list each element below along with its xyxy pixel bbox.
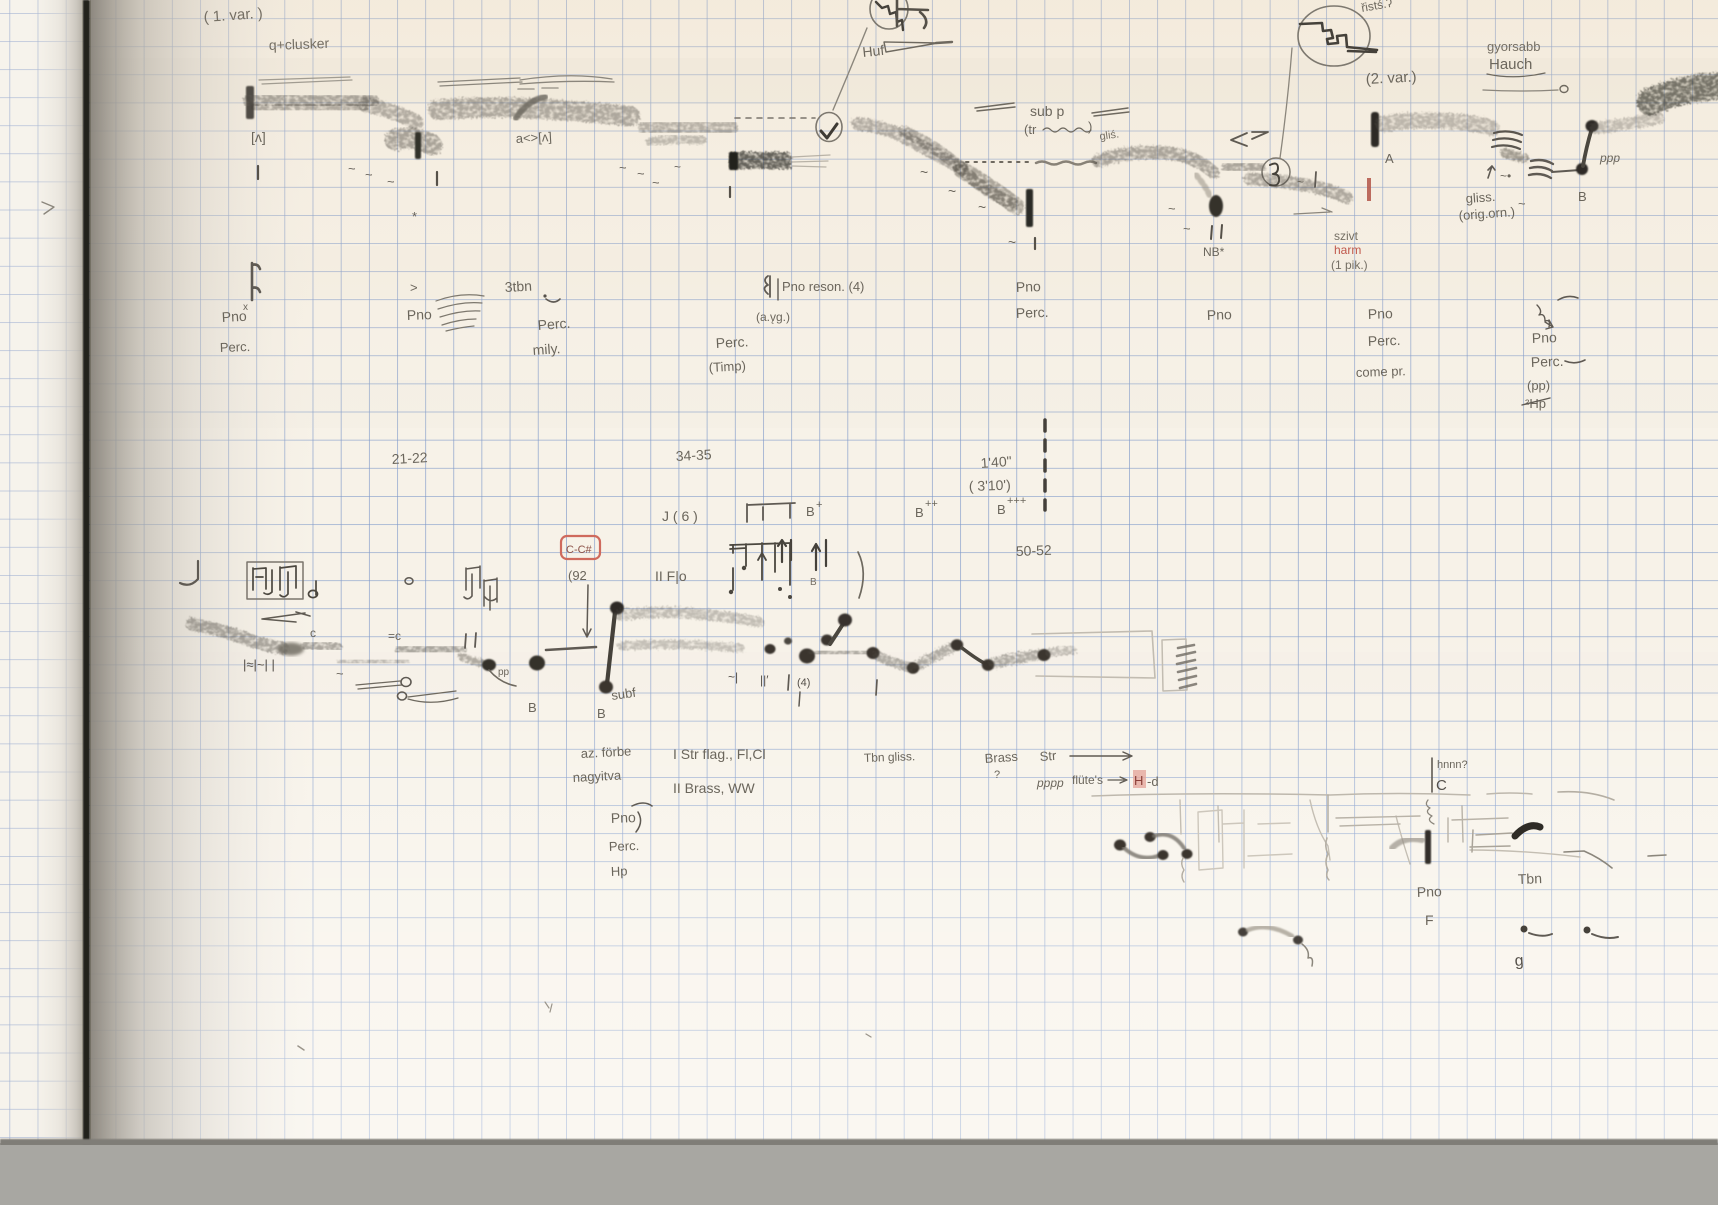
svg-text:(92: (92	[568, 568, 587, 583]
svg-text:II Brass, WW: II Brass, WW	[673, 780, 755, 796]
svg-text:come pr.: come pr.	[1356, 363, 1406, 380]
svg-text:pppp: pppp	[1036, 776, 1064, 790]
svg-text:(tr: (tr	[1024, 122, 1037, 137]
svg-text:~: ~	[920, 164, 928, 180]
svg-text:Str: Str	[1039, 748, 1057, 764]
svg-text:Tbn gliss.: Tbn gliss.	[864, 749, 916, 765]
svg-text:g: g	[1514, 952, 1524, 970]
svg-text:*: *	[412, 209, 417, 224]
svg-text:Pno: Pno	[1417, 883, 1443, 900]
svg-text:B: B	[810, 577, 817, 588]
svg-text:Pno: Pno	[1207, 306, 1233, 323]
svg-text:(1 pik.): (1 pik.)	[1331, 258, 1368, 272]
svg-text:21-22: 21-22	[391, 449, 428, 467]
svg-text:1'40": 1'40"	[980, 453, 1012, 471]
svg-text:Pno: Pno	[221, 308, 247, 325]
svg-text:~|: ~|	[728, 670, 738, 684]
svg-text:Perc.: Perc.	[537, 315, 571, 333]
svg-text:+: +	[816, 499, 822, 511]
svg-text:~: ~	[348, 161, 356, 176]
svg-text:ppp: ppp	[1599, 151, 1620, 165]
svg-text:F: F	[1425, 912, 1434, 928]
svg-text:~: ~	[1297, 175, 1304, 189]
svg-text:(Timp): (Timp)	[708, 358, 746, 375]
svg-text:sub p: sub p	[1030, 103, 1064, 119]
svg-text:szivt: szivt	[1334, 229, 1359, 243]
svg-text:I Str flag., Fl,Cl: I Str flag., Fl,Cl	[673, 746, 766, 762]
svg-text:~: ~	[619, 160, 627, 175]
svg-text:nagyitva: nagyitva	[572, 767, 622, 785]
svg-text:Pno: Pno	[1532, 329, 1558, 346]
svg-text:B: B	[997, 502, 1006, 517]
svg-text:~: ~	[1008, 234, 1016, 250]
svg-text:++: ++	[925, 498, 938, 510]
svg-text:az. förbe: az. förbe	[580, 743, 631, 761]
svg-text:Brass: Brass	[984, 749, 1019, 766]
svg-text:-d: -d	[1147, 774, 1159, 789]
svg-text:Perc.: Perc.	[609, 838, 640, 854]
svg-text:B: B	[528, 700, 537, 715]
svg-text:Huf: Huf	[862, 42, 885, 60]
svg-text:B: B	[806, 504, 815, 519]
svg-text:~: ~	[1518, 196, 1526, 211]
svg-text:gyorsabb: gyorsabb	[1487, 39, 1540, 54]
svg-text:(2. var.): (2. var.)	[1365, 68, 1417, 88]
svg-text:ḥnnn?: ḥnnn?	[1437, 759, 1468, 771]
svg-text:||′: ||′	[760, 673, 769, 687]
svg-text:Pno: Pno	[407, 306, 433, 323]
svg-text:~: ~	[387, 174, 395, 189]
svg-text:c: c	[310, 626, 316, 640]
svg-text:H: H	[1134, 773, 1143, 788]
svg-text:): )	[1088, 119, 1092, 134]
svg-text:Pno: Pno	[1368, 305, 1394, 322]
svg-text:Perc.: Perc.	[1016, 304, 1049, 321]
svg-text:Perc.: Perc.	[1531, 353, 1564, 370]
svg-text:q+clusker: q+clusker	[269, 35, 330, 53]
svg-text:Perc.: Perc.	[715, 333, 748, 351]
svg-text:B: B	[597, 706, 606, 721]
svg-text:~: ~	[652, 175, 660, 190]
svg-text:NB*: NB*	[1203, 245, 1225, 259]
svg-text:mily.: mily.	[532, 340, 561, 358]
svg-text:Tbn: Tbn	[1518, 870, 1543, 887]
svg-text:~: ~	[1168, 201, 1176, 216]
svg-text:?: ?	[994, 769, 1000, 781]
svg-text:(4): (4)	[797, 677, 810, 689]
svg-text:Perc.: Perc.	[220, 339, 251, 355]
svg-text:gliss.: gliss.	[1465, 189, 1496, 206]
svg-text:( 3'10'): ( 3'10')	[969, 477, 1011, 494]
svg-text:~: ~	[978, 199, 986, 215]
svg-text:II F|o: II F|o	[655, 568, 687, 584]
svg-text:|≈|~| |: |≈|~| |	[243, 657, 275, 672]
svg-text:~: ~	[948, 183, 956, 199]
svg-text:~: ~	[365, 167, 373, 182]
svg-text:>: >	[410, 280, 418, 295]
svg-text:~•: ~•	[1500, 169, 1511, 183]
svg-text:=c: =c	[388, 629, 401, 643]
svg-text:Pno: Pno	[1016, 278, 1042, 295]
svg-text:A: A	[1385, 151, 1394, 166]
svg-text:(pp): (pp)	[1527, 378, 1550, 393]
svg-text:pp: pp	[498, 667, 510, 678]
svg-text:+++: +++	[1007, 495, 1026, 507]
svg-text:flüte's: flüte's	[1072, 773, 1103, 787]
svg-text:Hp: Hp	[611, 863, 628, 879]
svg-text:50-52: 50-52	[1016, 542, 1053, 559]
svg-text:B: B	[1578, 189, 1587, 204]
svg-text:~: ~	[336, 666, 344, 681]
svg-text:harm: harm	[1334, 243, 1361, 257]
svg-text:34-35: 34-35	[675, 446, 712, 464]
svg-text:Perc.: Perc.	[1368, 332, 1401, 349]
svg-text:J ( 6 ): J ( 6 )	[662, 508, 698, 524]
svg-text:[ʌ]: [ʌ]	[251, 129, 266, 145]
svg-text:~: ~	[674, 160, 681, 174]
svg-text:~: ~	[1183, 221, 1191, 236]
svg-text:a<>[ʌ]: a<>[ʌ]	[515, 129, 552, 146]
svg-text:(a.v̨g.): (a.v̨g.)	[756, 310, 790, 324]
svg-text:C-C#: C-C#	[566, 544, 593, 556]
svg-text:~: ~	[637, 166, 645, 181]
svg-text:Pno reson. (4): Pno reson. (4)	[782, 279, 864, 294]
svg-text:Hauch: Hauch	[1489, 56, 1532, 73]
svg-text:3tbn: 3tbn	[504, 278, 532, 295]
svg-text:C: C	[1436, 777, 1447, 794]
svg-text:B: B	[915, 505, 924, 520]
svg-text:Pno: Pno	[611, 809, 637, 826]
